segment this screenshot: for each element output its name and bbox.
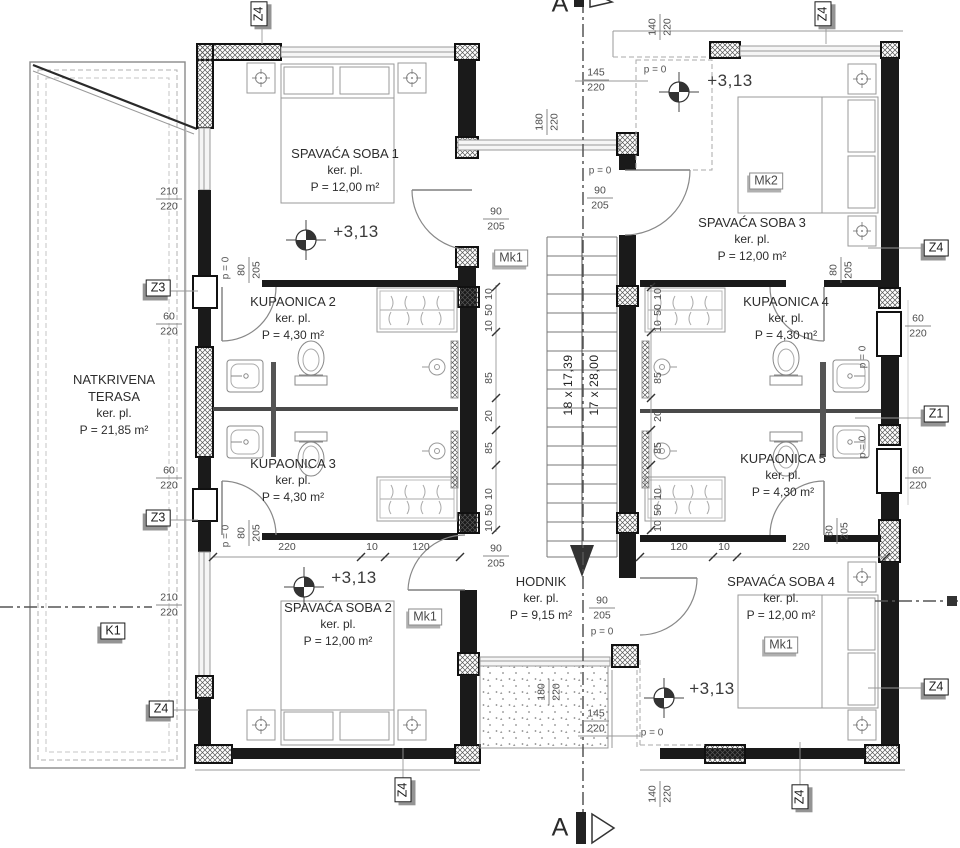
wall-tag-z4: Z4 (815, 2, 832, 27)
section-letter-bottom: A (552, 814, 569, 843)
parapet-label: p = 0 (644, 65, 667, 76)
dim-60-220: 60220 (905, 465, 931, 492)
wall-tag-k1: K1 (100, 623, 125, 640)
dim-85: 85 (652, 442, 664, 454)
stair-riser-count: 18 x 17,39 (561, 354, 575, 415)
parapet-label: p = 0 (858, 346, 869, 369)
dim-140-220: 140220 (647, 14, 674, 40)
floor-plan: NATKRIVENA TERASA ker. pl. P = 21,85 m² … (0, 0, 960, 848)
toilet (295, 341, 327, 385)
room-label-bedroom1: SPAVAĆA SOBA 1 ker. pl. P = 12,00 m² (291, 145, 399, 196)
elevation-mark-icon (659, 72, 699, 112)
stair-tread-count: 17 x 28,00 (587, 354, 601, 415)
toilet (770, 341, 802, 385)
dim-180-220: 180220 (534, 109, 561, 135)
dim-80-205: 80205 (824, 518, 851, 544)
dim-60-220: 60220 (156, 311, 182, 338)
dim-145-220: 145220 (583, 708, 609, 735)
shower-icon (422, 359, 445, 375)
dim-85: 85 (652, 372, 664, 384)
stairs-down-arrow (570, 545, 594, 577)
dim-10: 10 (718, 541, 730, 553)
sink (227, 426, 263, 458)
dim-50: 50 (483, 304, 495, 316)
room-label-bedroom2: SPAVAĆA SOBA 2 ker. pl. P = 12,00 m² (284, 599, 392, 650)
shower-icon (422, 443, 445, 459)
dim-50: 50 (483, 504, 495, 516)
sink (227, 360, 263, 392)
room-label-hall: HODNIK ker. pl. P = 9,15 m² (510, 573, 572, 624)
dim-10: 10 (483, 520, 495, 532)
dim-50: 50 (652, 504, 664, 516)
tag-mk1: Mk1 (764, 637, 798, 654)
elevation-mark-icon (644, 678, 684, 718)
dim-10: 10 (652, 320, 664, 332)
dim-90-205: 90205 (587, 185, 613, 212)
dim-80-205: 80205 (236, 257, 263, 283)
dim-20: 20 (652, 410, 664, 422)
wall-tag-z4: Z4 (251, 2, 268, 27)
dim-120: 120 (412, 541, 430, 553)
wall-tag-z3: Z3 (146, 510, 171, 527)
section-marker-bar (576, 812, 586, 844)
wall-tag-z4: Z4 (924, 679, 949, 696)
elevation-label: +3,13 (689, 679, 735, 699)
room-label-bedroom4: SPAVAĆA SOBA 4 ker. pl. P = 12,00 m² (727, 573, 835, 624)
dim-10: 10 (483, 288, 495, 300)
room-label-bedroom3: SPAVAĆA SOBA 3 ker. pl. P = 12,00 m² (698, 214, 806, 265)
dim-80-205: 80205 (828, 257, 855, 283)
elevation-label: +3,13 (707, 71, 753, 91)
dim-210-220: 210220 (156, 592, 182, 619)
room-label-bath5: KUPAONICA 5 ker. pl. P = 4,30 m² (740, 450, 826, 501)
wardrobe (377, 288, 457, 332)
section-letter-top: A (552, 0, 569, 19)
room-label-bath3: KUPAONICA 3 ker. pl. P = 4,30 m² (250, 455, 336, 506)
room-label-bath4: KUPAONICA 4 ker. pl. P = 4,30 m² (743, 293, 829, 344)
dim-10: 10 (483, 488, 495, 500)
room-label-bath2: KUPAONICA 2 ker. pl. P = 4,30 m² (250, 293, 336, 344)
elevation-mark-icon (286, 220, 326, 260)
dim-50: 50 (652, 304, 664, 316)
elevation-label: +3,13 (333, 222, 379, 242)
wall-tag-z4: Z4 (149, 701, 174, 718)
dim-10: 10 (483, 320, 495, 332)
dim-180-220: 180220 (536, 679, 563, 705)
dim-10: 10 (652, 520, 664, 532)
wall-tag-z4: Z4 (924, 240, 949, 257)
dim-120: 120 (670, 541, 688, 553)
dim-10: 10 (652, 488, 664, 500)
dim-20: 20 (483, 410, 495, 422)
dim-220: 220 (278, 541, 296, 553)
elevation-label: +3,13 (331, 568, 377, 588)
wall-tag-z4: Z4 (395, 778, 412, 803)
dim-60-220: 60220 (156, 465, 182, 492)
dim-90-205: 90205 (483, 543, 509, 570)
section-marker-triangle (592, 814, 614, 843)
parapet-label: p = 0 (221, 257, 232, 280)
dim-140-220: 140220 (647, 781, 674, 807)
dim-60-220: 60220 (905, 313, 931, 340)
wall-tag-z4: Z4 (792, 785, 809, 810)
dim-10: 10 (652, 288, 664, 300)
tag-mk2: Mk2 (749, 173, 783, 190)
wall-tag-z3: Z3 (146, 280, 171, 297)
tag-mk1: Mk1 (494, 250, 528, 267)
room-label-terrace: NATKRIVENA TERASA ker. pl. P = 21,85 m² (73, 371, 155, 439)
dim-90-205: 90205 (589, 595, 615, 622)
dim-85: 85 (483, 442, 495, 454)
parapet-label: p = 0 (641, 728, 664, 739)
dim-145-220: 145220 (583, 67, 609, 94)
dim-80-205: 80205 (236, 520, 263, 546)
parapet-label: p = 0 (589, 166, 612, 177)
parapet-label: p = 0 (221, 525, 232, 548)
wardrobe (377, 477, 457, 521)
parapet-label: p = 0 (591, 627, 614, 638)
dim-90-205: 90205 (483, 206, 509, 233)
parapet-label: p = 0 (858, 436, 869, 459)
tag-mk1: Mk1 (408, 609, 442, 626)
dim-10: 10 (366, 541, 378, 553)
dim-220: 220 (792, 541, 810, 553)
wall-tag-z1: Z1 (924, 406, 949, 423)
dim-210-220: 210220 (156, 186, 182, 213)
dim-85: 85 (483, 372, 495, 384)
